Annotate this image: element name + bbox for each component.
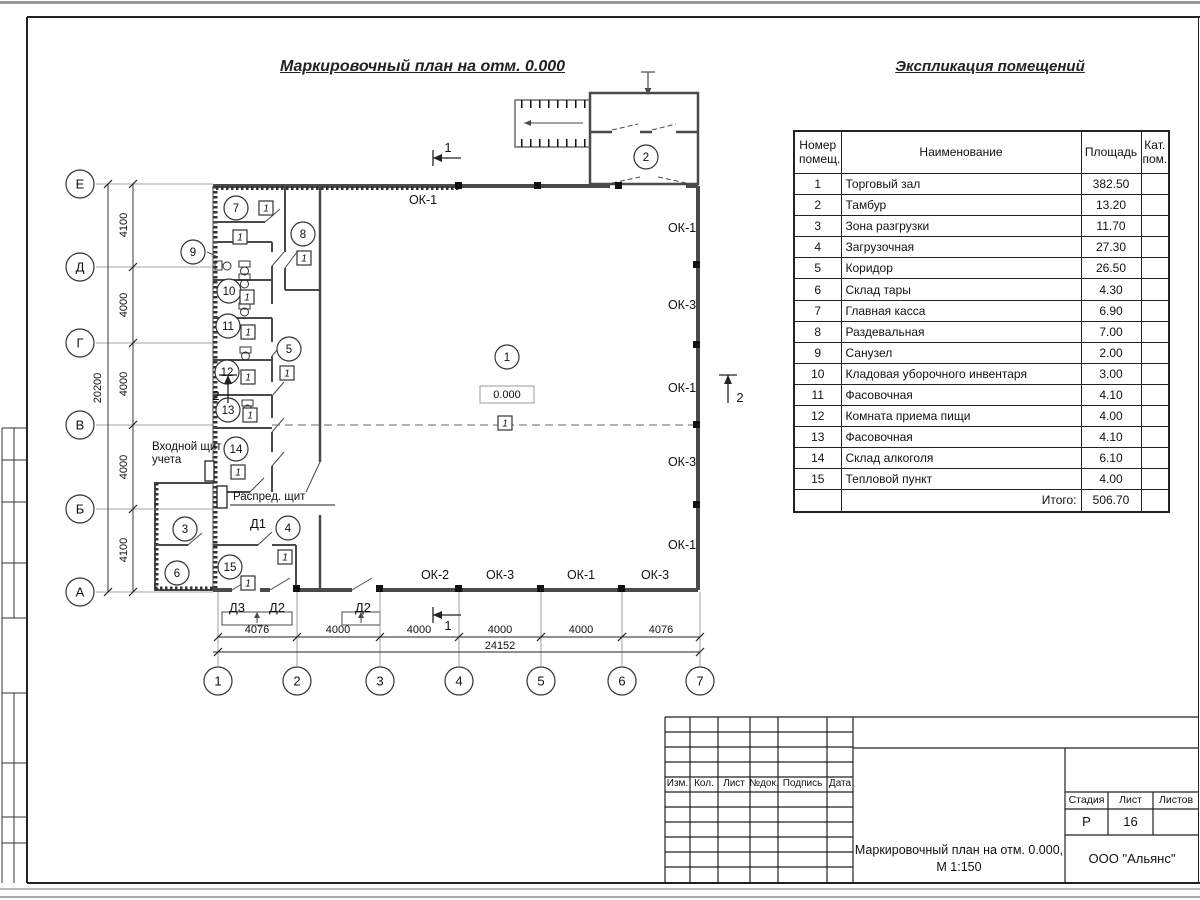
toilet-icon <box>239 261 250 275</box>
grid-bubble-row-label: Б <box>76 502 85 517</box>
col-header-area: Площадь <box>1081 131 1141 174</box>
door-label: Д2 <box>269 600 285 615</box>
schedule-row: 8Раздевальная7.00 <box>794 321 1169 342</box>
schedule-row: 14Склад алкоголя6.10 <box>794 448 1169 469</box>
tb-sheet-value: 16 <box>1108 809 1153 835</box>
schedule-cell-area: 4.10 <box>1081 384 1141 405</box>
schedule-cell-number: 5 <box>794 258 841 279</box>
floor-mark-number: 1 <box>244 293 250 304</box>
sheet-edge-bottom <box>0 889 1200 897</box>
floor-mark-number: 1 <box>282 553 288 564</box>
tb-header-list: Лист <box>718 777 750 792</box>
tb-company: ООО "Альянс" <box>1065 835 1199 883</box>
schedule-total-row: Итого: 506.70 <box>794 490 1169 512</box>
schedule-row: 2Тамбур13.20 <box>794 195 1169 216</box>
window-label: ОК-3 <box>641 568 669 582</box>
schedule-cell-number: 1 <box>794 174 841 195</box>
grid-bubble-row-label: Д <box>76 260 85 275</box>
schedule-cell-area: 382.50 <box>1081 174 1141 195</box>
tb-header-izm: Изм. <box>665 777 690 792</box>
col-header-name: Наименование <box>841 131 1081 174</box>
schedule-cell-category <box>1141 469 1169 490</box>
schedule-cell-area: 3.00 <box>1081 363 1141 384</box>
schedule-cell-name: Склад алкоголя <box>841 448 1081 469</box>
room-marker-number: 4 <box>285 523 292 535</box>
schedule-cell-number: 6 <box>794 279 841 300</box>
schedule-cell-number: 7 <box>794 300 841 321</box>
grid-bubble-column-label: 2 <box>293 674 300 689</box>
dim-label-left-total: 20200 <box>92 373 104 404</box>
floor-mark-number: 1 <box>245 373 251 384</box>
window-label: ОК-1 <box>567 568 595 582</box>
schedule-cell-name: Кладовая уборочного инвентаря <box>841 363 1081 384</box>
schedule-cell-category <box>1141 448 1169 469</box>
schedule-cell-number: 13 <box>794 427 841 448</box>
dim-label-left: 4000 <box>118 293 130 317</box>
schedule-cell-area: 13.20 <box>1081 195 1141 216</box>
entry-panel-symbol <box>205 461 214 481</box>
room-marker-number: 5 <box>286 344 292 356</box>
tb-drawing-title-line2: М 1:150 <box>936 859 981 876</box>
schedule-cell-category <box>1141 384 1169 405</box>
grid-bubble-column-label: 5 <box>537 674 544 689</box>
room-marker-number: 6 <box>174 568 180 580</box>
schedule-cell-category <box>1141 174 1169 195</box>
grid-bubble-column-label: 3 <box>376 674 383 689</box>
dim-label-bottom-total: 24152 <box>485 640 516 652</box>
schedule-cell-category <box>1141 427 1169 448</box>
door-label: Д3 <box>229 600 245 615</box>
schedule-cell-area: 6.10 <box>1081 448 1141 469</box>
dim-label-bottom: 4076 <box>245 624 269 636</box>
section-mark-arrow <box>724 375 732 384</box>
schedule-row: 5Коридор26.50 <box>794 258 1169 279</box>
tb-sheets-value <box>1153 809 1199 835</box>
schedule-cell-category <box>1141 237 1169 258</box>
room-marker-number: 2 <box>643 152 649 164</box>
floor-mark-number: 1 <box>245 579 251 590</box>
door-label: Д1 <box>250 516 266 531</box>
tb-stage-label: Стадия <box>1065 792 1108 809</box>
window-label: ОК-1 <box>668 221 696 235</box>
distribution-panel-label: Распред. щит <box>233 491 306 503</box>
dim-label-bottom: 4076 <box>649 624 673 636</box>
window-label: ОК-3 <box>668 455 696 469</box>
schedule-cell-name: Склад тары <box>841 279 1081 300</box>
tb-stage-value: Р <box>1065 809 1108 835</box>
floor-mark-number: 1 <box>245 328 251 339</box>
schedule-cell-name: Торговый зал <box>841 174 1081 195</box>
tb-drawing-title: Маркировочный план на отм. 0.000, М 1:15… <box>853 835 1065 883</box>
dim-label-left: 4100 <box>118 213 130 237</box>
schedule-cell-area: 4.00 <box>1081 406 1141 427</box>
schedule-cell-area: 2.00 <box>1081 342 1141 363</box>
window-label: ОК-1 <box>668 538 696 552</box>
schedule-cell-name: Коридор <box>841 258 1081 279</box>
total-label: Итого: <box>841 490 1081 512</box>
dim-label-bottom: 4000 <box>326 624 350 636</box>
grid-bubble-row-label: В <box>76 418 85 433</box>
room-marker-number: 14 <box>230 444 243 456</box>
schedule-row: 3Зона разгрузки11.70 <box>794 216 1169 237</box>
window-label: ОК-2 <box>421 568 449 582</box>
schedule-row: 15Тепловой пункт4.00 <box>794 469 1169 490</box>
floor-mark-number: 1 <box>301 254 307 265</box>
schedule-header-row: Номер помещ. Наименование Площадь Кат. п… <box>794 131 1169 174</box>
schedule-row: 9Санузел2.00 <box>794 342 1169 363</box>
tb-header-sign: Подпись <box>778 777 827 792</box>
elevation-value: 0.000 <box>493 389 521 401</box>
schedule-cell-area: 11.70 <box>1081 216 1141 237</box>
schedule-cell-name: Главная касса <box>841 300 1081 321</box>
dim-label-left: 4000 <box>118 455 130 479</box>
schedule-cell-number: 15 <box>794 469 841 490</box>
schedule-cell-number: 2 <box>794 195 841 216</box>
plan-title: Маркировочный план на отм. 0.000 <box>265 58 580 76</box>
schedule-cell-name: Фасовочная <box>841 427 1081 448</box>
schedule-cell-name: Тамбур <box>841 195 1081 216</box>
schedule-cell-area: 4.10 <box>1081 427 1141 448</box>
schedule-cell-category <box>1141 342 1169 363</box>
plan-generated-marks: 1234567ЕДГВБА407640004000400040004076241… <box>66 140 744 695</box>
grid-bubble-row-label: Г <box>76 336 83 351</box>
schedule-cell-number: 3 <box>794 216 841 237</box>
schedule-row: 6Склад тары4.30 <box>794 279 1169 300</box>
window-label: ОК-1 <box>668 381 696 395</box>
floor-mark-number: 1 <box>247 411 253 422</box>
schedule-cell-category <box>1141 363 1169 384</box>
sink-icon <box>239 303 250 316</box>
floor-mark-number: 1 <box>235 468 241 479</box>
room-marker-number: 1 <box>504 352 510 364</box>
section-mark-label: 2 <box>212 388 219 403</box>
schedule-row: 10Кладовая уборочного инвентаря3.00 <box>794 363 1169 384</box>
schedule-cell-number: 8 <box>794 321 841 342</box>
schedule-cell-number: 10 <box>794 363 841 384</box>
dim-label-left: 4100 <box>118 538 130 562</box>
schedule-cell-category <box>1141 216 1169 237</box>
door-label: Д2 <box>355 600 371 615</box>
floor-mark-number: 1 <box>502 419 508 430</box>
schedule-title: Экспликация помещений <box>865 58 1115 75</box>
tb-header-kol: Кол. <box>690 777 718 792</box>
entry-panel-label: Входной щит <box>152 441 222 453</box>
floor-plan: 1234567ЕДГВБА407640004000400040004076241… <box>0 0 790 710</box>
schedule-cell-name: Санузел <box>841 342 1081 363</box>
schedule-cell-name: Загрузочная <box>841 237 1081 258</box>
schedule-cell-area: 27.30 <box>1081 237 1141 258</box>
schedule-cell-area: 7.00 <box>1081 321 1141 342</box>
window-label: ОК-1 <box>409 193 437 207</box>
schedule-body: 1Торговый зал382.502Тамбур13.203Зона раз… <box>794 174 1169 490</box>
drawing-sheet: 1234567ЕДГВБА407640004000400040004076241… <box>0 0 1200 900</box>
schedule-cell-category <box>1141 258 1169 279</box>
floor-mark-number: 1 <box>263 204 269 215</box>
schedule-cell-number: 12 <box>794 406 841 427</box>
grid-bubble-row-label: А <box>76 585 85 600</box>
schedule-row: 1Торговый зал382.50 <box>794 174 1169 195</box>
schedule-cell-category <box>1141 300 1169 321</box>
col-header-category: Кат. пом. <box>1141 131 1169 174</box>
tb-header-doc: №док. <box>750 777 778 792</box>
tb-sheets-label: Листов <box>1153 792 1199 809</box>
sink-icon <box>240 347 251 360</box>
tb-sheet-label: Лист <box>1108 792 1153 809</box>
section-mark-arrow <box>433 154 442 162</box>
tb-drawing-title-line1: Маркировочный план на отм. 0.000, <box>855 842 1063 859</box>
schedule-cell-name: Фасовочная <box>841 384 1081 405</box>
grid-bubble-column-label: 1 <box>214 674 221 689</box>
room-marker-number: 3 <box>182 524 188 536</box>
schedule-row: 12Комната приема пищи4.00 <box>794 406 1169 427</box>
schedule-row: 4Загрузочная27.30 <box>794 237 1169 258</box>
schedule-cell-number: 9 <box>794 342 841 363</box>
section-mark-arrow <box>433 611 442 619</box>
room-marker-number: 10 <box>223 286 236 298</box>
room-schedule-table: Номер помещ. Наименование Площадь Кат. п… <box>793 130 1170 513</box>
schedule-cell-area: 26.50 <box>1081 258 1141 279</box>
grid-bubble-column-label: 6 <box>618 674 625 689</box>
window-sill-marks <box>293 100 700 592</box>
schedule-cell-category <box>1141 321 1169 342</box>
section-mark-label: 1 <box>444 140 451 155</box>
grid-bubble-row-label: Е <box>76 177 85 192</box>
schedule-cell-category <box>1141 195 1169 216</box>
floor-mark-number: 1 <box>284 369 290 380</box>
room-marker-number: 8 <box>300 229 306 241</box>
grid-bubble-column-label: 7 <box>696 674 703 689</box>
room-marker-number: 11 <box>222 321 234 333</box>
room-marker-number: 7 <box>233 203 239 215</box>
section-mark-label: 2 <box>736 390 743 405</box>
section-mark-label: 1 <box>444 618 451 633</box>
schedule-row: 11Фасовочная4.10 <box>794 384 1169 405</box>
window-label: ОК-3 <box>486 568 514 582</box>
schedule-cell-name: Тепловой пункт <box>841 469 1081 490</box>
schedule-cell-area: 4.00 <box>1081 469 1141 490</box>
schedule-row: 13Фасовочная4.10 <box>794 427 1169 448</box>
dim-label-bottom: 4000 <box>488 624 512 636</box>
schedule-cell-category <box>1141 279 1169 300</box>
dim-label-left: 4000 <box>118 372 130 396</box>
schedule-cell-number: 4 <box>794 237 841 258</box>
schedule-cell-area: 4.30 <box>1081 279 1141 300</box>
schedule-cell-name: Комната приема пищи <box>841 406 1081 427</box>
distribution-panel-symbol <box>217 486 227 508</box>
schedule-cell-name: Зона разгрузки <box>841 216 1081 237</box>
dim-label-bottom: 4000 <box>569 624 593 636</box>
schedule-cell-area: 6.90 <box>1081 300 1141 321</box>
floor-mark-number: 1 <box>237 233 243 244</box>
plan-walls <box>155 72 698 625</box>
col-header-number: Номер помещ. <box>794 131 841 174</box>
room-marker-number: 12 <box>221 367 234 379</box>
room-marker-number: 9 <box>190 247 196 259</box>
total-area: 506.70 <box>1081 490 1141 512</box>
window-label: ОК-3 <box>668 298 696 312</box>
tb-header-date: Дата <box>827 777 853 792</box>
schedule-cell-category <box>1141 406 1169 427</box>
room-marker-number: 13 <box>222 405 235 417</box>
room-marker-number: 15 <box>224 562 237 574</box>
grid-bubble-column-label: 4 <box>455 674 462 689</box>
schedule-cell-number: 11 <box>794 384 841 405</box>
schedule-cell-name: Раздевальная <box>841 321 1081 342</box>
schedule-cell-number: 14 <box>794 448 841 469</box>
dim-label-bottom: 4000 <box>407 624 431 636</box>
schedule-row: 7Главная касса6.90 <box>794 300 1169 321</box>
entry-panel-label: учета <box>152 454 182 466</box>
